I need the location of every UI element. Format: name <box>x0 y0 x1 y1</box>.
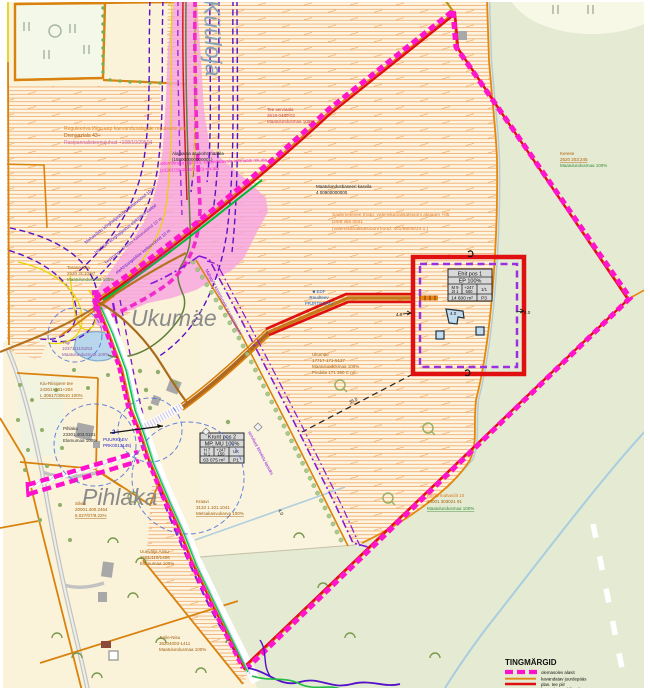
svg-text:Ukumäe: Ukumäe <box>131 305 217 331</box>
svg-text:Alajaama asukoht maaala: Alajaama asukoht maaala <box>172 151 224 156</box>
svg-text:Kerese: Kerese <box>560 151 575 156</box>
svg-text:Maatulundusmaa 100%: Maatulundusmaa 100% <box>67 277 114 282</box>
svg-text:Krunt pos 2: Krunt pos 2 <box>208 435 236 441</box>
svg-text:Tee serviaala: Tee serviaala <box>267 107 294 112</box>
svg-text:Tarasovitka: Tarasovitka <box>67 265 90 270</box>
svg-text:4.0: 4.0 <box>450 311 457 316</box>
svg-text:6.027/07/8.22%: 6.027/07/8.22% <box>75 513 107 518</box>
svg-text:23301.403.0181: 23301.403.0181 <box>63 432 96 437</box>
svg-text:Silvia: Silvia <box>75 501 86 506</box>
svg-text:P3: P3 <box>481 296 487 302</box>
svg-text:Maatulundusmaa 100%: Maatulundusmaa 100% <box>560 163 607 168</box>
svg-text:Maatulundusmaa 100%: Maatulundusmaa 100% <box>427 506 474 511</box>
svg-text:Kingu mahasõit 10: Kingu mahasõit 10 <box>427 493 465 498</box>
svg-text:Maatulundusmaa 100%: Maatulundusmaa 100% <box>159 647 206 652</box>
svg-text:PUURKAEV: PUURKAEV <box>103 437 128 442</box>
svg-text:L 30617/30610 100%: L 30617/30610 100% <box>40 393 83 398</box>
svg-text:Metsakasvukarva 100%: Metsakasvukarva 100% <box>196 511 244 516</box>
svg-text:150: 150 <box>218 452 226 457</box>
svg-text:olemasolev alasit: olemasolev alasit <box>541 670 575 675</box>
svg-text:10371111/5253: 10371111/5253 <box>62 346 93 351</box>
svg-text:Sademetevee trüüp: valemikanal: Sademetevee trüüp: valemikanalisatsiooni… <box>332 212 450 218</box>
svg-text:PRJRTEGRIV: PRJRTEGRIV <box>305 301 333 306</box>
svg-text:Jürile-Nisu: Jürile-Nisu <box>159 635 181 640</box>
svg-text:36204003-1411: 36204003-1411 <box>159 641 191 646</box>
svg-text:Uuevälja Aasu: Uuevälja Aasu <box>140 549 169 554</box>
svg-text:20001.400.2464: 20001.400.2464 <box>75 507 108 512</box>
svg-text:20001 303021 91: 20001 303021 91 <box>427 499 463 504</box>
svg-text:2520 203:245: 2520 203:245 <box>560 157 588 162</box>
svg-text:Rasipannalisteenujuhud +108/10: Rasipannalisteenujuhud +108/10/29504 <box>64 140 152 146</box>
svg-text:Elamumaa 100%: Elamumaa 100% <box>63 438 97 443</box>
svg-text:3133 1.101.1041: 3133 1.101.1041 <box>196 505 230 510</box>
svg-text:Drenaaziala 43+: Drenaaziala 43+ <box>64 133 101 139</box>
svg-text:Drett viia 4041: Drett viia 4041 <box>332 219 363 225</box>
svg-text:Kiu-Riisipere tee: Kiu-Riisipere tee <box>40 381 74 386</box>
svg-text:Raudteev: Raudteev <box>309 295 329 300</box>
svg-text:Pihlaka: Pihlaka <box>63 426 78 431</box>
svg-text:4.0: 4.0 <box>524 310 531 315</box>
svg-text:EP 100%: EP 100% <box>459 279 482 285</box>
svg-text:24301+101+204: 24301+101+204 <box>40 387 73 392</box>
svg-text:Maatulundusbaseeri kasvila: Maatulundusbaseeri kasvila <box>316 184 372 189</box>
svg-text:Kraavi: Kraavi <box>196 499 209 504</box>
svg-text:2t 1: 2t 1 <box>452 289 460 294</box>
svg-text:17717-171-5137: 17717-171-5137 <box>312 358 346 363</box>
svg-text:N 1: N 1 <box>204 452 211 457</box>
svg-text:Ukumäe: Ukumäe <box>312 352 329 357</box>
svg-text:3681:110/1406: 3681:110/1406 <box>140 555 170 560</box>
svg-text:Tiigi: Tiigi <box>62 340 70 345</box>
svg-text:P1: P1 <box>233 458 239 464</box>
svg-text:TINGMÄRGID: TINGMÄRGID <box>505 658 557 667</box>
svg-text:1/1: 1/1 <box>481 287 487 292</box>
svg-text:(valemikanalisatsiooni kood: 4: (valemikanalisatsiooni kood: 401/88/08/2… <box>332 226 429 232</box>
svg-text:Maatulundusmaa 100%: Maatulundusmaa 100% <box>267 119 314 124</box>
svg-text:63 075 m²: 63 075 m² <box>203 458 225 464</box>
svg-text:4 00800000000: 4 00800000000 <box>316 190 348 195</box>
svg-text:2520 3C10/97: 2520 3C10/97 <box>67 271 96 276</box>
svg-text:Reguleeriva lõigu uap kaevandu: Reguleeriva lõigu uap kaevandusalasele r… <box>64 126 185 132</box>
svg-text:3618-0430-02: 3618-0430-02 <box>267 113 296 118</box>
svg-text:Maatulundusmaa 100%: Maatulundusmaa 100% <box>62 352 109 357</box>
svg-text:14 600 m²: 14 600 m² <box>451 296 473 302</box>
svg-text:Maatulundusmaa 100%: Maatulundusmaa 100% <box>312 364 359 369</box>
svg-text:4.0: 4.0 <box>396 312 403 317</box>
svg-text:Pindala 171 380 C m²: Pindala 171 380 C m² <box>312 370 356 375</box>
svg-text:kavandatav juurdepääs: kavandatav juurdepääs <box>541 677 587 682</box>
svg-text:PRK0013145): PRK0013145) <box>103 443 132 448</box>
svg-text:Ehit pos 1: Ehit pos 1 <box>458 272 482 278</box>
svg-text:Elamumaa 100%: Elamumaa 100% <box>140 561 174 566</box>
svg-text:500: 500 <box>466 289 474 294</box>
svg-text:Küüloja: Küüloja <box>199 0 227 77</box>
svg-text:■ EDF: ■ EDF <box>313 289 326 294</box>
